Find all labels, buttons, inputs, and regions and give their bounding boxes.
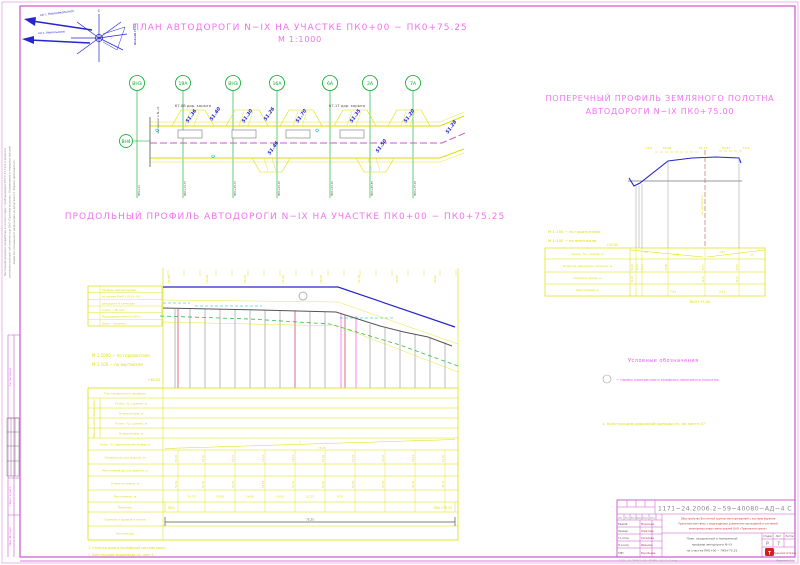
cross-top-mark: 53.4 xyxy=(743,146,750,150)
ground-mark: 52.12 xyxy=(702,276,705,283)
drawing-name-line1: План, продольный и поперечный xyxy=(687,537,738,541)
top-elevation-labels: 53.30 53.28 53.25 53.20 53.05 52.70 52.3… xyxy=(167,275,437,283)
margin-soglasovano-label: Согласовано xyxy=(8,367,12,386)
picket-label: 7А xyxy=(410,81,417,87)
picket-row-ticks xyxy=(165,502,455,512)
station-label: ПК0+75.25 xyxy=(413,181,417,196)
design-mark: 52.14 xyxy=(641,264,644,271)
station-label: ПК0+13.70 xyxy=(183,181,187,196)
culvert-rects xyxy=(178,130,364,138)
cross-scale-h: М 1:100 − по горизонтали xyxy=(548,229,601,234)
note-box-line: для дороги IV категории xyxy=(102,301,135,305)
elevation-label: 51.26 xyxy=(263,106,277,122)
cross-scale-v: М 1:100 − по вертикали xyxy=(548,238,597,243)
grade-diagonal xyxy=(165,440,455,449)
top-ticks xyxy=(168,270,456,276)
top-elevation: 53.20 xyxy=(281,275,285,283)
sig-header-cell: Кол. xyxy=(625,518,630,520)
ordinate-lines xyxy=(175,309,445,388)
dim-label-1: 67.88 дор. корыто xyxy=(175,103,212,108)
sig-name: Иванова xyxy=(641,543,653,547)
plan-elevation-labels: 51.36 51.40 51.30 51.26 51.70 51.35 51.2… xyxy=(185,106,459,156)
org-line-1: Обустройство Восточной группы месторожде… xyxy=(681,517,776,521)
axis-mark: 53.30 xyxy=(201,454,205,462)
cross-row-label: Отметка земляного полотна, м xyxy=(563,264,612,268)
legend-item-text: − номер поперечного профиля земляного по… xyxy=(616,377,719,382)
sig-header-cell: Подп. xyxy=(643,518,649,520)
cross-row-label: Уклон, ‰ / длина, м xyxy=(571,252,603,256)
row-label: Отметка земли, м xyxy=(111,482,139,486)
elevation-label: 51.40 xyxy=(209,106,223,122)
row-label: Уклон, ‰ / длина, м xyxy=(115,422,147,426)
file-reference: 1171−24.2006.2−59−40080−АД−4−С.dwg xyxy=(619,559,677,563)
wind-rose-rays xyxy=(71,14,127,62)
cross-section: ПОПЕРЕЧНЫЙ ПРОФИЛЬ ЗЕМЛЯНОГО ПОЛОТНА АВТ… xyxy=(545,92,774,304)
sig-header-cell: Изм. xyxy=(618,518,623,520)
frame: Согласовано Подп. и дата Инв. № подл. На… xyxy=(2,2,798,563)
legend: Условные обозначения − номер поперечного… xyxy=(602,358,719,426)
row-label: Пикетаж xyxy=(118,506,132,510)
top-elevation: 53.28 xyxy=(205,275,209,283)
plan-elements-length: 75.25 xyxy=(306,518,314,522)
ground-line xyxy=(163,308,452,346)
axis-mark: 52.90 xyxy=(321,454,325,462)
stage-header: Лист xyxy=(776,535,782,538)
design-mark: 53.88 xyxy=(665,264,668,271)
cross-design-marks: 52.10 52.12 52.14 53.88 53.77 53.87 xyxy=(631,264,739,271)
axis-mark: 53.27 xyxy=(231,454,235,462)
sig-name: Юматова xyxy=(641,529,654,533)
distance-value: 14.60 xyxy=(246,495,254,499)
direction-label-1: на с. Новоникольское xyxy=(40,9,75,17)
ground-mark: 49.75 xyxy=(441,480,445,488)
cross-picket-label: ПК0+75.00 xyxy=(690,300,712,304)
distance-value: 12.25 xyxy=(306,495,314,499)
picket-start: ПК0 xyxy=(168,506,175,510)
stage-block: Стадия Лист Листов Р 7 xyxy=(763,535,794,546)
axis-mark: 52.65 xyxy=(351,454,355,462)
station-label: ПК0+00 xyxy=(137,185,141,196)
slope-value: 2.58 xyxy=(673,253,679,257)
ordinate-lines-red xyxy=(178,309,345,388)
drawing-name-line3: на участке ПК0+00 − ПК0+75.25 xyxy=(687,549,738,553)
distance-value: 10.00 xyxy=(276,495,284,499)
road-axis-label: автодорога N−IX xyxy=(156,107,160,134)
row-label: Расстояние до оси дороги, м xyxy=(102,469,148,473)
sig-header-cell: Дата xyxy=(650,518,655,520)
station-label: ПК0+43.30 xyxy=(277,181,281,196)
cross-top-mark: 53.87 xyxy=(722,146,731,150)
row-label: Уклон, ‰ / длина, м xyxy=(115,402,147,406)
ground-mark: 51.32 xyxy=(174,480,178,488)
top-elevation: 52.70 xyxy=(357,275,361,283)
stage-header: Листов xyxy=(785,535,794,538)
picket-end: ПК0+75.25 xyxy=(434,506,452,510)
sig-role: Гл.спец. xyxy=(618,536,630,540)
margin-podp-data-label: Подп. и дата xyxy=(8,486,12,505)
left-picket-label: ВН4 xyxy=(121,139,130,145)
left-margin-grid xyxy=(7,418,19,476)
margin-note-line-2: интеллектуальной собственностью ОАО «Тра… xyxy=(8,146,12,278)
picket-circles: ВН3 19А ВН3 16А 6А 2А 7А xyxy=(130,76,421,91)
direction-arrow-1 xyxy=(32,21,92,30)
sig-name: Воробьева xyxy=(641,551,656,555)
note-box-line: Руководящая отметка 0.65 м xyxy=(102,315,141,319)
plan-title: ПЛАН АВТОДОРОГИ N−IX НА УЧАСТКЕ ПК0+00 −… xyxy=(132,23,468,33)
design-line xyxy=(163,287,455,327)
cross-top-dashes xyxy=(655,151,742,152)
group-label-right-ditch: Правый кювет xyxy=(92,418,96,438)
design-mark: 53.77 xyxy=(702,264,705,271)
top-elevation: 52.00 xyxy=(433,275,437,283)
top-elevation: 53.30 xyxy=(167,275,171,283)
plan-view: ВН3 19А ВН3 16А 6А 2А 7А ВН4 51.36 xyxy=(120,76,466,199)
legend-circle-symbol xyxy=(603,375,611,383)
design-mark: 52.12 xyxy=(636,264,639,271)
top-elevation: 52.35 xyxy=(395,275,399,283)
sheet-value: 7 xyxy=(777,541,780,546)
plan-title-block: ПЛАН АВТОДОРОГИ N−IX НА УЧАСТКЕ ПК0+00 −… xyxy=(132,23,468,44)
note-box-grid xyxy=(88,286,162,326)
group-label-left-ditch: Левый кювет xyxy=(92,399,96,418)
culvert xyxy=(286,130,310,138)
org-line-2: Транспортная связь с подъездными узлами … xyxy=(678,522,778,526)
axis-elevation-marks: 53.30 53.30 53.27 53.22 53.10 52.90 52.6… xyxy=(174,454,445,462)
ground-mark: 52.10 xyxy=(631,276,634,283)
axis-mark: 53.30 xyxy=(174,454,178,462)
sig-header-cell: Лист xyxy=(631,518,636,520)
profile-scale-v: М 1:100 − по вертикали xyxy=(92,362,143,367)
stage-header: Стадия xyxy=(763,535,772,538)
cross-top-marks: 53.0 53.88 53.77 53.87 53.4 xyxy=(646,146,750,150)
legend-heading: Условные обозначения xyxy=(628,358,699,364)
road-edge-bottom xyxy=(150,149,464,158)
direction-arrowhead-2 xyxy=(22,36,34,44)
cross-row-label: Отметка земли, м xyxy=(573,276,601,280)
sig-name: Морозова xyxy=(641,522,655,526)
org-line-3: межпромысловых магистралей ОАО «Трансмаг… xyxy=(689,527,767,531)
axis-mark: 52.40 xyxy=(381,454,385,462)
dim-label-2: 67.17 дор. корыто xyxy=(329,103,366,108)
picket-label: 2А xyxy=(367,81,374,87)
envelope-upper xyxy=(163,300,458,344)
legend-note: 1. Конструкцию дорожной одежды см. на ли… xyxy=(602,421,706,426)
margin-note-line-1: Настоящий документ разработан в соответс… xyxy=(3,147,7,276)
direction-arrow-2 xyxy=(30,40,90,43)
top-elevation: 53.25 xyxy=(243,275,247,283)
stage-value: Р xyxy=(766,541,769,546)
drawing-sheet: Согласовано Подп. и дата Инв. № подл. На… xyxy=(0,0,800,565)
note-box-line: по нормам СНиП 2.05.02−85 xyxy=(102,295,140,299)
slope-value: 20 xyxy=(750,253,754,257)
profile-scale-h: М 1:1000 − по горизонтали xyxy=(92,353,150,358)
slope-trapezoids-bottom xyxy=(252,158,394,172)
sig-role: Провер. xyxy=(618,529,629,533)
surface-dashed-line xyxy=(160,316,458,366)
cross-datum: +52.00 xyxy=(606,243,618,247)
wind-rose-triangle xyxy=(103,27,125,50)
picket-label: ВН3 xyxy=(132,81,142,87)
ground-mark: 51.02 xyxy=(291,480,295,488)
sig-role: ГИП xyxy=(618,551,624,555)
distance-value: 9.70 xyxy=(337,495,343,499)
row-label-type: Тип поперечного профиля xyxy=(103,392,146,396)
profile-note-2: 2. Конструкцию водоотвода см. лист 5. xyxy=(88,553,154,557)
wind-rose: на с. Новоникольское на с. Никольское РО… xyxy=(22,9,137,62)
margin-inv-podl-label: Инв. № подл. xyxy=(8,526,12,545)
profile-note-1: 1. Отметки даны в Балтийской системе выс… xyxy=(88,546,167,550)
cross-axis-text: ось автодороги xyxy=(701,195,704,215)
station-label: ПК0+28.70 xyxy=(233,181,237,196)
distance-values: 13.70 15.00 14.60 10.00 12.25 9.70 xyxy=(187,495,343,499)
ground-mark: 52.14 xyxy=(736,276,739,283)
row-label: Километры xyxy=(116,532,135,536)
distance-value: 13.70 xyxy=(187,495,195,499)
note-box-line: Профиль запроектирован xyxy=(102,288,136,292)
north-letter: С xyxy=(98,9,101,13)
cross-ground-marks: 52.10 52.12 52.14 xyxy=(631,276,739,283)
format-label: Формат А1 xyxy=(776,559,793,563)
culvert xyxy=(340,130,364,138)
cross-section-marker-circle xyxy=(299,292,307,300)
cross-distance-value: 7.63 xyxy=(670,290,676,294)
title-block: 1171−24.2006.2−59−40080−АД−4 С Обустройс… xyxy=(617,500,797,563)
drawing-name-line2: профили автодороги N−IX xyxy=(692,543,733,547)
margin-note-line-3: лицам без письменного разрешения не допу… xyxy=(12,159,16,264)
ground-mark: 51.26 xyxy=(231,480,235,488)
cross-title-line1: ПОПЕРЕЧНЫЙ ПРОФИЛЬ ЗЕМЛЯНОГО ПОЛОТНА xyxy=(546,92,775,103)
row-label: Расстояние, м xyxy=(114,495,136,499)
ground-mark: 50.55 xyxy=(351,480,355,488)
company-name: Трансмагистраль xyxy=(773,551,797,555)
sig-name: Киселева xyxy=(641,536,654,540)
grade-length: 75.25 xyxy=(318,446,326,450)
picket-label: 6А xyxy=(327,81,334,87)
picket-label: ВН3 xyxy=(228,81,238,87)
axis-mark: 51.90 xyxy=(441,454,445,462)
ground-mark: 50.02 xyxy=(411,480,415,488)
drawing-canvas: Согласовано Подп. и дата Инв. № подл. На… xyxy=(0,0,800,565)
row-label: Отметка по оси дороги, м xyxy=(104,456,145,460)
slope-value: 20 xyxy=(644,250,648,254)
picket-label: 19А xyxy=(179,81,189,87)
ground-mark: 51.18 xyxy=(261,480,265,488)
plan-scale: М 1:1000 xyxy=(278,35,322,44)
longitudinal-profile: ПРОДОЛЬНЫЙ ПРОФИЛЬ АВТОДОРОГИ N−IX НА УЧ… xyxy=(65,210,505,557)
elevation-label: 51.50 xyxy=(375,138,389,154)
row-label: Отметка дна, м xyxy=(119,412,144,416)
sig-role: Н.контр. xyxy=(618,543,630,547)
row-label: Уклон, ‰ / вертикальная кривая, м xyxy=(100,443,151,447)
picket-label: 16А xyxy=(273,81,283,87)
cross-distance-value: 3.63 xyxy=(719,290,725,294)
culvert xyxy=(232,130,256,138)
document-number: 1171−24.2006.2−59−40080−АД−4 С xyxy=(658,506,792,513)
station-label: ПК0+53.30 xyxy=(330,181,334,196)
axis-mark: 52.15 xyxy=(411,454,415,462)
profile-title: ПРОДОЛЬНЫЙ ПРОФИЛЬ АВТОДОРОГИ N−IX НА УЧ… xyxy=(65,210,505,222)
station-label: ПК0+65.55 xyxy=(370,181,374,196)
ordinate-lines-magenta xyxy=(341,313,356,388)
cross-top-mark: 53.88 xyxy=(663,146,672,150)
ground-mark: 51.30 xyxy=(201,480,205,488)
axis-mark: 53.10 xyxy=(291,454,295,462)
profile-datum: +48.00 xyxy=(147,378,160,382)
grade-value: 7 xyxy=(299,441,301,445)
profile-bounds xyxy=(163,268,458,388)
distance-value: 15.00 xyxy=(216,495,224,499)
cross-title-line2: АВТОДОРОГИ N−IX ПК0+75.00 xyxy=(586,107,735,116)
cross-row-label: Расстояние, м xyxy=(576,288,598,292)
cross-slope-diagonals xyxy=(630,250,765,257)
elevation-label: 51.46 xyxy=(267,140,281,156)
cross-top-mark: 53.0 xyxy=(646,146,653,150)
axis-mark: 53.22 xyxy=(261,454,265,462)
paper-border xyxy=(2,2,798,563)
row-label: Отметка дна, м xyxy=(119,432,144,436)
envelope-lower xyxy=(163,322,458,372)
cross-design-line xyxy=(629,157,741,186)
cross-ordinates xyxy=(636,158,739,248)
cross-top-mark: 53.77 xyxy=(699,146,708,150)
sig-header-cell: №док xyxy=(636,517,642,520)
design-mark: 52.10 xyxy=(631,264,634,271)
direction-arrowhead-1 xyxy=(24,17,36,26)
note-box-line: V расч. = 80 км/ч xyxy=(102,308,125,312)
ground-mark: 50.28 xyxy=(381,480,385,488)
road-edge-top xyxy=(150,116,464,126)
design-mark: 53.87 xyxy=(736,264,739,271)
slope-value: 7.67 xyxy=(719,250,725,254)
culvert xyxy=(178,130,202,138)
top-elevation: 53.05 xyxy=(319,275,323,283)
direction-label-2: на с. Никольское xyxy=(38,30,65,35)
note-box-lines: Профиль запроектирован по нормам СНиП 2.… xyxy=(102,288,141,325)
ground-mark: 50.80 xyxy=(321,480,325,488)
note-box-line: Грунт − суглинок xyxy=(102,321,126,325)
ground-elevation-marks: 51.32 51.30 51.26 51.18 51.02 50.80 50.5… xyxy=(174,480,445,488)
table-data-ticks xyxy=(178,450,445,512)
sig-role: Разраб. xyxy=(618,522,628,526)
row-label: Прямые и кривые в плане xyxy=(104,518,145,522)
